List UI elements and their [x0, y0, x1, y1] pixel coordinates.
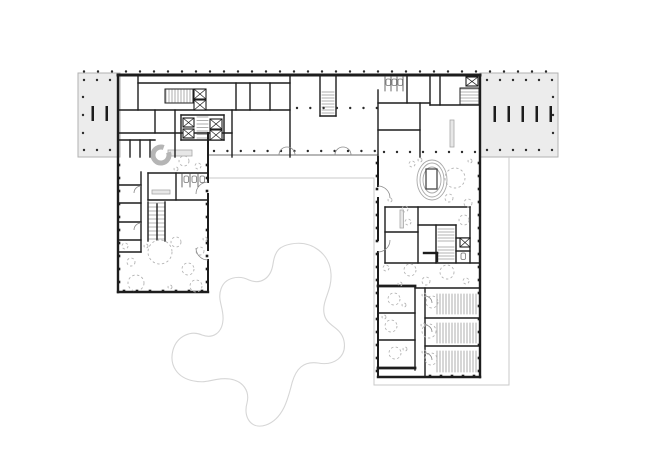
floor-plan-drawing: [0, 0, 650, 473]
floor-plan-page: [0, 0, 650, 473]
